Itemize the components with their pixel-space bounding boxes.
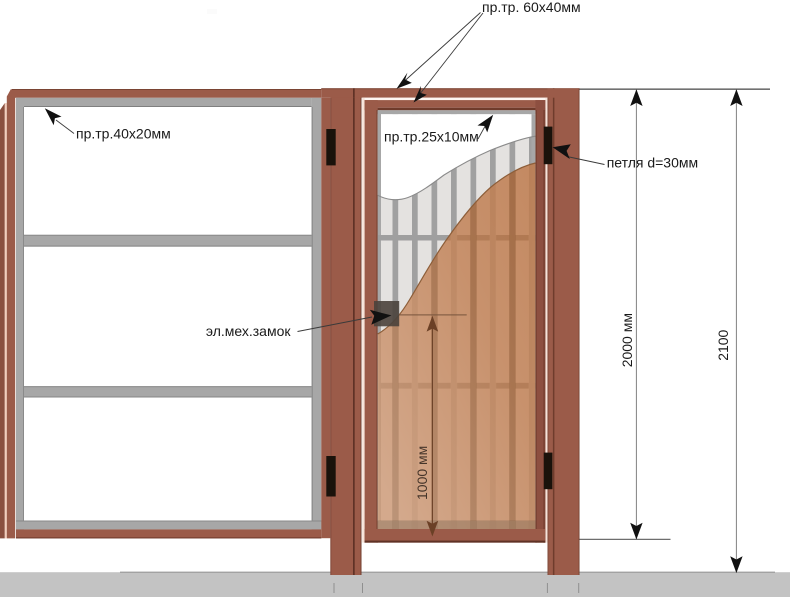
svg-text:пр.тр. 60х40мм: пр.тр. 60х40мм: [482, 0, 581, 15]
svg-text:2100: 2100: [715, 329, 731, 360]
svg-text:пр.тр.40х20мм: пр.тр.40х20мм: [76, 126, 171, 142]
svg-text:петля d=30мм: петля d=30мм: [607, 154, 698, 170]
svg-text:2000 мм: 2000 мм: [619, 313, 635, 367]
svg-text:пр.тр.25х10мм: пр.тр.25х10мм: [384, 129, 479, 145]
svg-text:1000 мм: 1000 мм: [414, 446, 430, 500]
svg-text:эл.мех.замок: эл.мех.замок: [206, 323, 292, 339]
